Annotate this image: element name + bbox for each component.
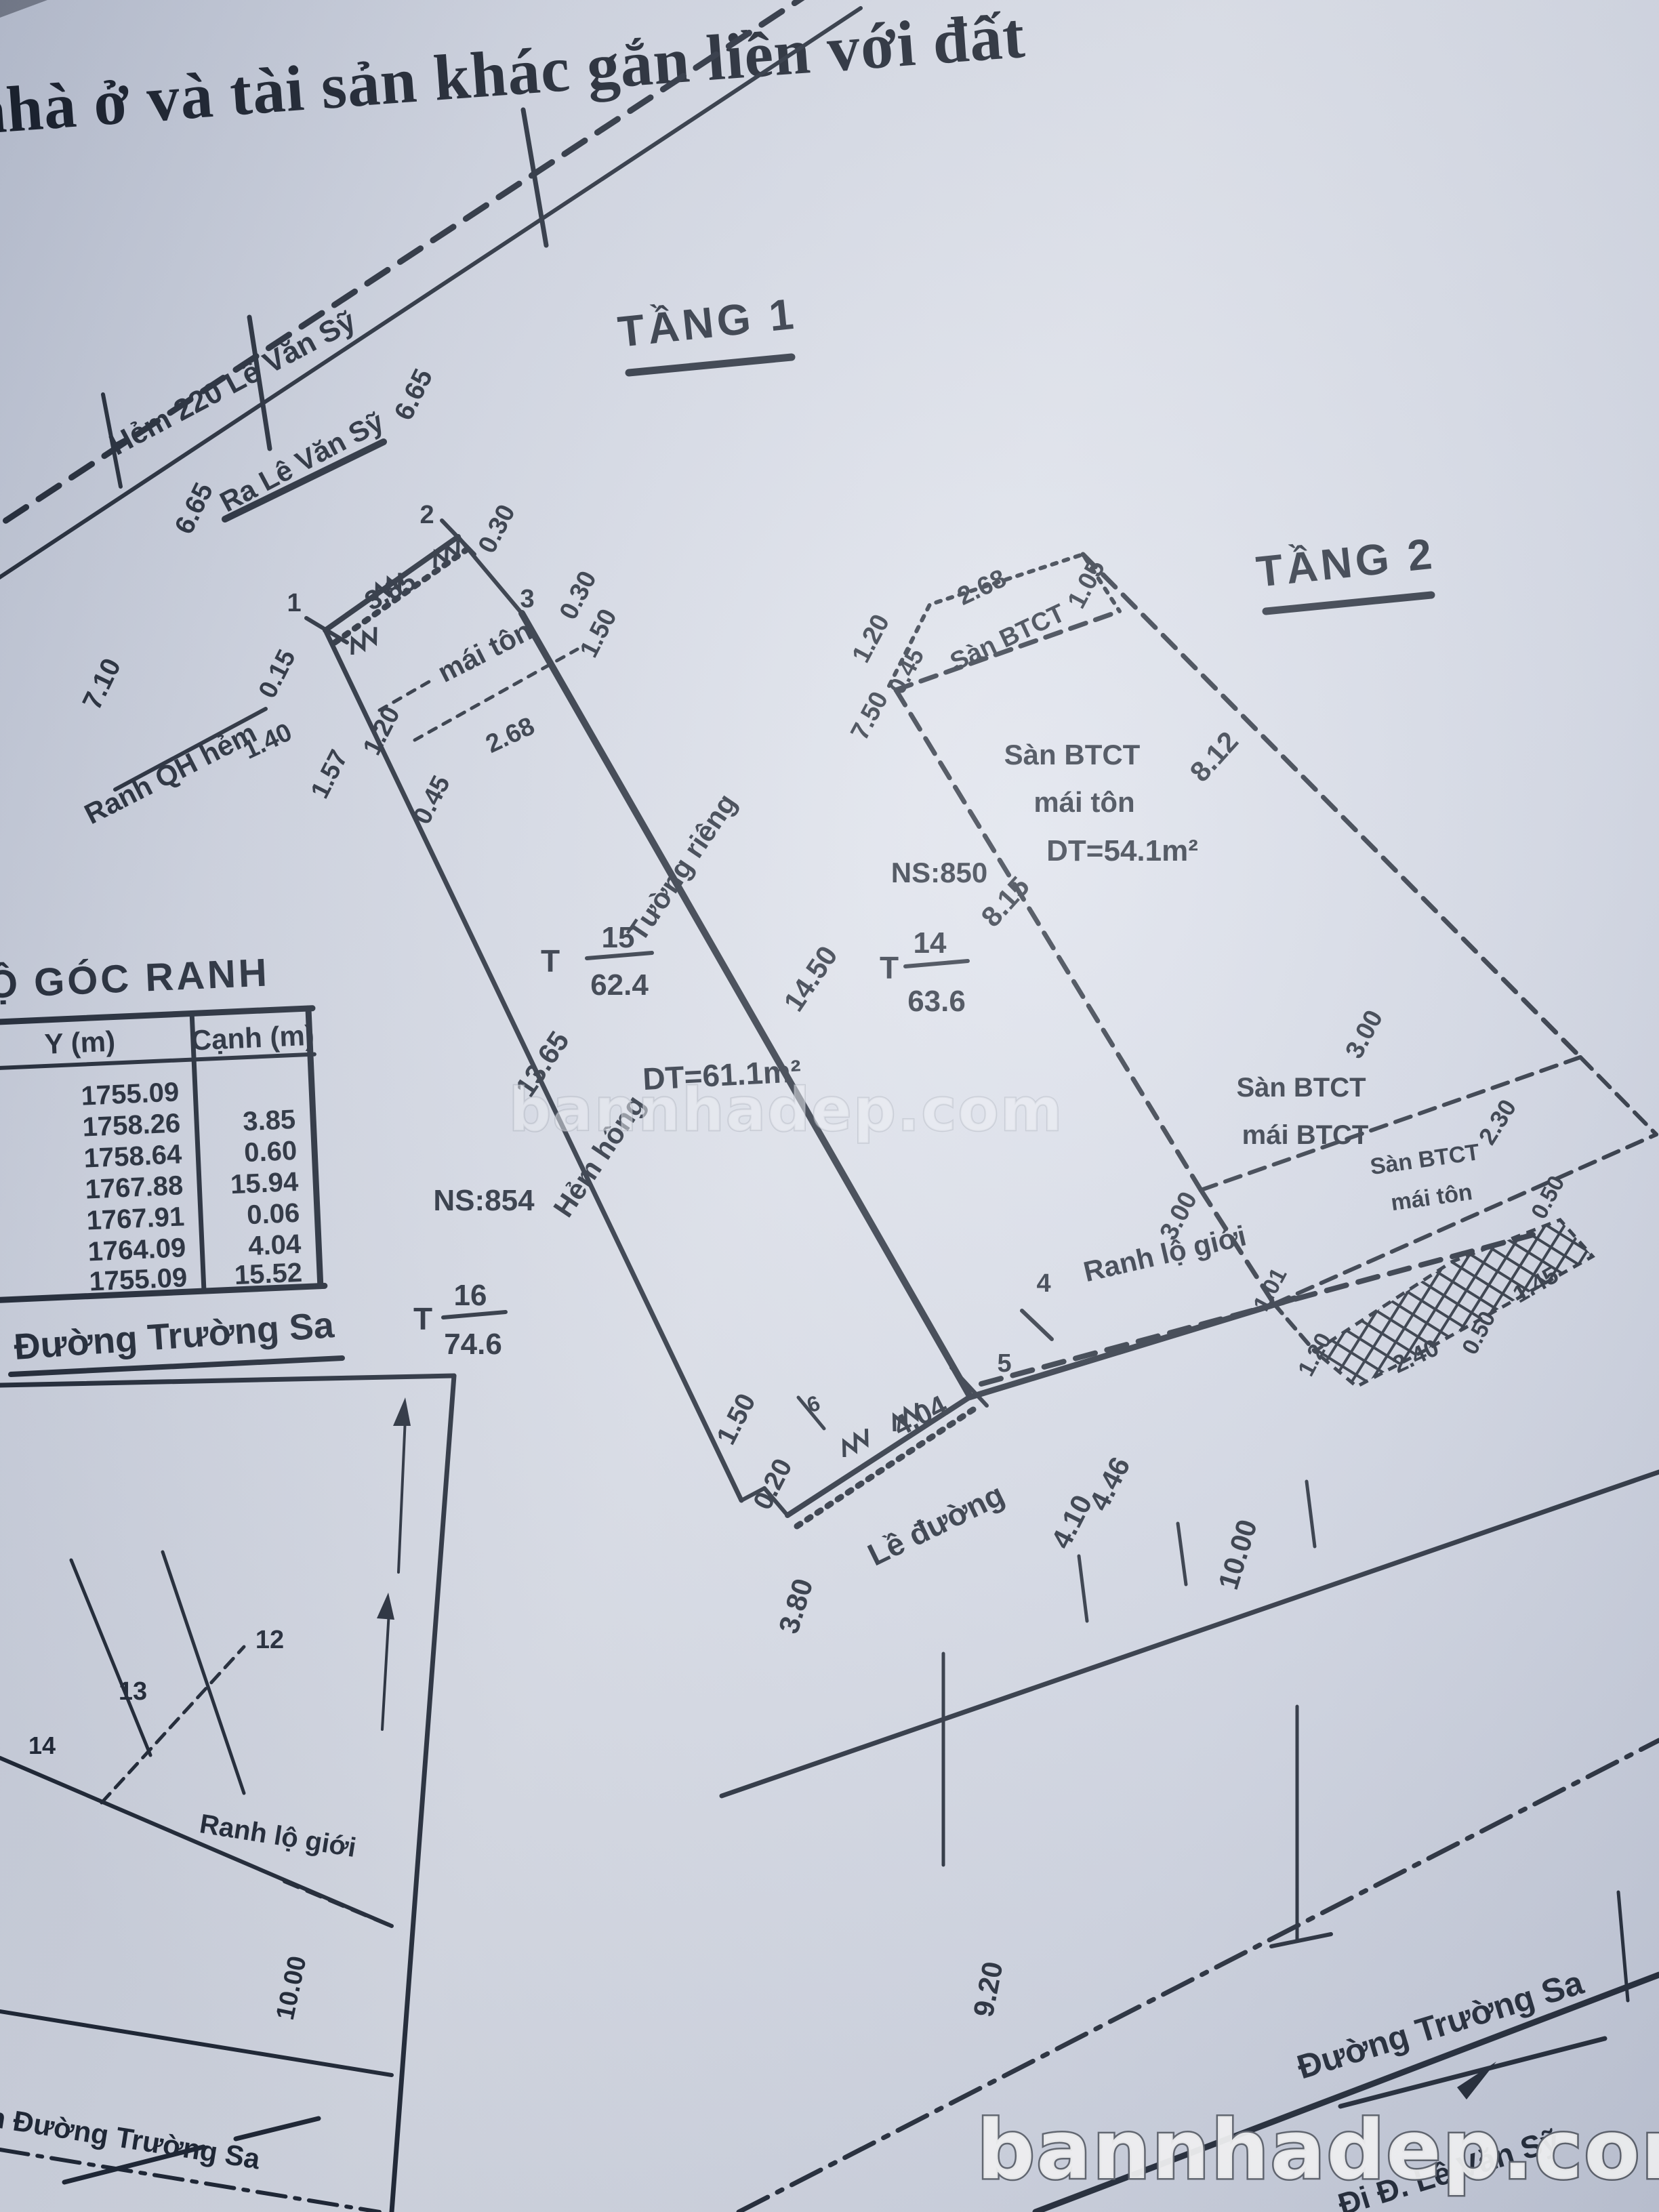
- goc-ranh-table: Ộ GÓC RANH Y (m) Cạnh (m) 1755.09 1758.2…: [0, 949, 325, 1301]
- street-width-10-00: 10.00: [1212, 1516, 1263, 1593]
- roof-label: mái tôn: [432, 614, 537, 689]
- tang2-underline: [1266, 595, 1431, 611]
- floor2-right-edge: [1083, 554, 1580, 1057]
- table-canh-2: 15.94: [230, 1167, 300, 1200]
- floor1-jog: [476, 558, 522, 613]
- vertex-4: 4: [1036, 1269, 1050, 1298]
- vertex-3: 3: [520, 585, 534, 613]
- street-lines: [722, 1472, 1659, 2212]
- table-canh-3: 0.06: [246, 1198, 300, 1230]
- scanned-survey-document: nhà ở và tài sản khác gắn liền với đất T…: [0, 0, 1659, 2212]
- dim-7-10: 7.10: [77, 654, 127, 714]
- dim-0-20: 0.20: [747, 1454, 798, 1514]
- parcel-14-area: 63.6: [907, 985, 966, 1018]
- dim-6-65-a: 6.65: [388, 365, 438, 425]
- parcel-14-prefix: T: [880, 950, 899, 985]
- dim-4-04: 4.04: [888, 1389, 952, 1442]
- dim-f2-0-45: 0.45: [882, 644, 929, 699]
- north-arrow-icon: [393, 1397, 411, 1426]
- inset-plot-divider: [71, 1560, 150, 1755]
- inset-width-10-00: 10.00: [271, 1954, 312, 2023]
- mid-street-label-group: Đường Trường Sa: [11, 1305, 342, 1374]
- parcel-15-area: 62.4: [590, 968, 649, 1002]
- inset-border-top: [0, 1376, 454, 1385]
- table-y-3: 1767.88: [85, 1170, 184, 1204]
- dim-f2-2-68: 2.68: [954, 564, 1011, 611]
- parcel-14-fraction: T 14 63.6: [880, 926, 968, 1018]
- street-name-arrowhead-icon: [1457, 2062, 1496, 2100]
- table-y-6: 1755.09: [89, 1263, 188, 1296]
- dim-8-12: 8.12: [1183, 725, 1244, 787]
- floor2-s3-line1: Sàn BTCT: [1368, 1139, 1481, 1180]
- table-canh-1: 0.60: [243, 1136, 298, 1168]
- vertex4-tick: [1022, 1311, 1052, 1339]
- inset-plot-13: 13: [119, 1677, 147, 1706]
- dim-3-80: 3.80: [773, 1575, 819, 1637]
- street-curb-line: [722, 1472, 1659, 1796]
- ns-850: NS:850: [891, 857, 987, 888]
- table-col-y: Y (m): [44, 1025, 116, 1060]
- curb-tick: [1307, 1481, 1315, 1547]
- floor2-s3-line2: mái tôn: [1389, 1179, 1474, 1216]
- dim-14-50: 14.50: [777, 940, 844, 1017]
- dim-2-68: 2.68: [482, 712, 539, 758]
- dim-f2-1-20: 1.20: [846, 610, 895, 668]
- vertex-2: 2: [419, 501, 434, 529]
- table-canh-5: 15.52: [234, 1258, 303, 1290]
- dim-1-57: 1.57: [306, 745, 354, 803]
- dim-1-50-bottom: 1.50: [711, 1389, 762, 1449]
- table-y-5: 1764.09: [87, 1233, 186, 1267]
- floor2-outline: [889, 554, 1656, 1387]
- table-col-canh: Cạnh (m): [190, 1019, 315, 1057]
- floor2-hatched-area: [1315, 1220, 1593, 1387]
- inset-plot-14: 14: [28, 1732, 56, 1759]
- floor1-right-wall: [522, 613, 969, 1395]
- tang1-underline: [629, 357, 792, 373]
- watermark-bottom: bannhadep.com: [977, 2104, 1659, 2198]
- north-arrow-icon: [382, 1612, 389, 1729]
- dim-0-15: 0.15: [253, 645, 302, 703]
- fraction-line: [587, 953, 652, 958]
- table-title: Ộ GÓC RANH: [0, 950, 270, 1006]
- north-arrow-icon: [377, 1593, 394, 1620]
- dim-3-00-right: 3.00: [1340, 1006, 1389, 1063]
- floor2-s1-line2: mái tôn: [1033, 786, 1134, 818]
- inset-plot-12: 12: [255, 1626, 284, 1654]
- tang2-header: TẦNG 2: [1254, 529, 1437, 611]
- north-arrow-icon: [398, 1418, 405, 1572]
- fraction-line: [443, 1312, 506, 1317]
- vertex-6: 6: [804, 1391, 823, 1418]
- dim-3-85: 3.85: [360, 566, 420, 617]
- inset-plot-divider: [163, 1552, 244, 1793]
- table-y-2: 1758.64: [83, 1139, 183, 1173]
- dim-0-50-a: 0.50: [1526, 1172, 1570, 1223]
- parcel-16-prefix: T: [413, 1301, 432, 1336]
- alley-direction: Ra Lê Văn Sỹ: [215, 405, 390, 518]
- roof-zigzag-icon: [838, 1429, 873, 1457]
- watermark-center: bannhadep.com: [508, 1075, 1063, 1145]
- dim-f2-1-05: 1.05: [1062, 556, 1111, 613]
- curb-tick: [1079, 1556, 1087, 1621]
- fraction-line: [905, 961, 968, 966]
- table-y-4: 1767.91: [86, 1202, 185, 1235]
- roof-zigzag-icon: [429, 540, 465, 568]
- dim-0-45: 0.45: [408, 771, 456, 829]
- parcel-14-num: 14: [914, 926, 947, 960]
- tang1-header: TẦNG 1: [615, 289, 799, 373]
- page-title: nhà ở và tài sản khác gắn liền với đất: [0, 0, 1027, 148]
- parcel-15-num: 15: [602, 921, 635, 954]
- tang1-label: TẦNG 1: [615, 289, 799, 356]
- table-y-1: 1758.26: [82, 1108, 181, 1142]
- inset-label-underline: [236, 2118, 319, 2139]
- floor2-s2-line2: mái BTCT: [1242, 1120, 1369, 1150]
- dim-f2-7-50: 7.50: [845, 687, 894, 745]
- floor2-s2-line1: Sàn BTCT: [1236, 1073, 1366, 1103]
- inset-street-edge: [0, 2011, 392, 2075]
- ns-854: NS:854: [433, 1184, 535, 1217]
- dim-0-30-a: 0.30: [473, 500, 521, 558]
- ranh-qh-hem-label: Ranh QH hẻm: [79, 716, 262, 830]
- roof-dashed-line: [380, 679, 434, 710]
- parcel-16-fraction: T 16 74.6: [413, 1279, 506, 1361]
- floor2-right-step: [1580, 1057, 1656, 1134]
- parcel-16-area: 74.6: [444, 1328, 502, 1361]
- vertex-1: 1: [287, 589, 301, 617]
- le-duong-label: Lề đường: [862, 1477, 1010, 1573]
- dim-6-65-b: 6.65: [169, 478, 219, 539]
- dim-2-30: 2.30: [1473, 1094, 1521, 1149]
- survey-drawing: nhà ở và tài sản khác gắn liền với đất T…: [0, 0, 1659, 2212]
- roof-zigzag-icon: [346, 627, 382, 655]
- table-y-0: 1755.09: [81, 1077, 180, 1111]
- vertex-5: 5: [997, 1349, 1011, 1378]
- street-name-label: Đường Trường Sa: [1292, 1963, 1588, 2087]
- inset-map: [0, 1376, 454, 2212]
- floor1-outline: [115, 520, 1533, 1526]
- street-width-9-20: 9.20: [967, 1959, 1009, 2020]
- parcel-15-prefix: T: [541, 943, 560, 979]
- table-canh-4: 4.04: [247, 1229, 302, 1261]
- curb-tick: [1178, 1523, 1186, 1584]
- photo-corner-shadow: [0, 0, 47, 18]
- table-canh-0: 3.85: [242, 1105, 296, 1136]
- floor2-s1-line1: Sàn BTCT: [1004, 739, 1141, 771]
- parcel-16-num: 16: [454, 1279, 487, 1312]
- tang2-label: TẦNG 2: [1254, 529, 1437, 596]
- floor2-s1-area: DT=54.1m²: [1046, 834, 1198, 867]
